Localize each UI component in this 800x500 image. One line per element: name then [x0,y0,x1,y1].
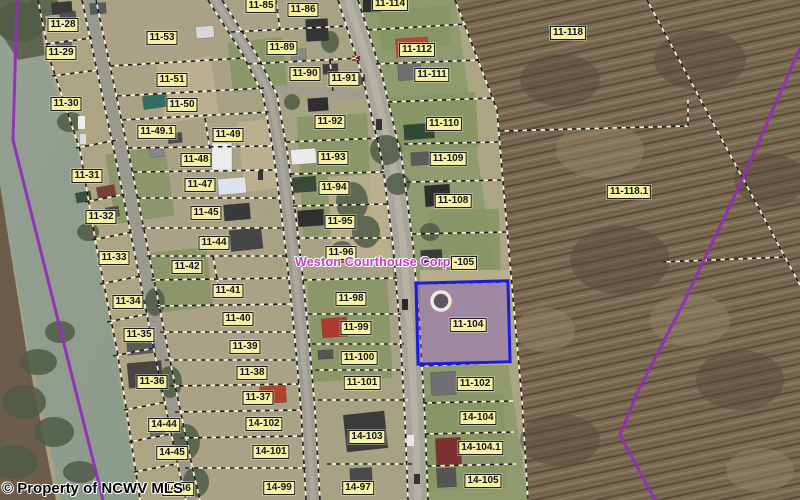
parcel-label-11-90[interactable]: 11-90 [289,67,320,81]
parcel-label-11-108[interactable]: 11-108 [435,194,472,208]
parcel-label-14-105[interactable]: 14-105 [464,474,501,488]
parcel-label-14-44[interactable]: 14-44 [148,418,180,432]
parcel-label-11-42[interactable]: 11-42 [171,260,202,274]
parcel-label-11-45[interactable]: 11-45 [190,206,221,220]
parcel-label-11-100[interactable]: 11-100 [341,351,378,365]
parcel-label-11-41[interactable]: 11-41 [212,284,243,298]
parcel-label-11-111[interactable]: 11-111 [414,68,449,82]
parcel-label-11-49[interactable]: 11-49 [212,128,243,142]
road-cross-street [266,89,372,95]
parcel-label-11-99[interactable]: 11-99 [340,321,371,335]
parcel-label-11-102[interactable]: 11-102 [457,377,494,391]
parcel-label-11-110[interactable]: 11-110 [426,117,462,131]
parcel-label-11-31[interactable]: 11-31 [71,169,102,183]
parcel-label-14-102[interactable]: 14-102 [245,417,282,431]
parcel-label-11-39[interactable]: 11-39 [229,340,260,354]
parcel-label-11-95[interactable]: 11-95 [324,215,355,229]
parcel-label-11-91[interactable]: 11-91 [328,72,359,86]
tank-feature-icon [432,292,450,310]
parcel-label-11-30[interactable]: 11-30 [50,97,81,111]
parcel-label-11-89[interactable]: 11-89 [266,41,297,55]
parcel-label-11-104[interactable]: 11-104 [450,318,487,332]
parcel-label-11-112[interactable]: 11-112 [399,43,435,57]
parcel-label-11-40[interactable]: 11-40 [222,312,253,326]
parcel-label-11-28[interactable]: 11-28 [47,18,78,32]
owner-name-overlay: Weston Courthouse Corp [295,255,451,270]
parcel-label-11-38[interactable]: 11-38 [236,366,267,380]
parcel-label-14-97[interactable]: 14-97 [342,481,374,495]
parcel-label-14-104.1[interactable]: 14-104.1 [458,441,503,455]
parcel-label-11-34[interactable]: 11-34 [112,295,143,309]
parcel-label-14-104[interactable]: 14-104 [459,411,496,425]
parcel-label-11-109[interactable]: 11-109 [430,152,467,166]
parcel-label-105[interactable]: -105 [451,256,477,270]
parcel-label-11-44[interactable]: 11-44 [198,236,229,250]
parcel-label-11-29[interactable]: 11-29 [45,46,76,60]
parcel-label-11-101[interactable]: 11-101 [344,376,381,390]
parcel-label-11-47[interactable]: 11-47 [184,178,215,192]
parcel-label-11-35[interactable]: 11-35 [123,328,154,342]
parcel-label-14-45[interactable]: 14-45 [156,446,188,460]
parcel-label-11-93[interactable]: 11-93 [317,151,348,165]
parcel-label-11-50[interactable]: 11-50 [166,98,197,112]
parcel-label-11-92[interactable]: 11-92 [314,115,345,129]
mls-attribution: © Property of NCWV MLS [2,480,183,498]
parcel-label-11-86[interactable]: 11-86 [287,3,318,17]
parcel-label-11-32[interactable]: 11-32 [85,210,116,224]
parcel-map-canvas[interactable]: 11-2811-2911-3011-3111-3211-3311-3411-35… [0,0,800,500]
parcel-label-11-36[interactable]: 11-36 [136,375,167,389]
parcel-label-11-118[interactable]: 11-118 [550,26,586,40]
parcel-label-11-33[interactable]: 11-33 [98,251,129,265]
parcel-label-14-103[interactable]: 14-103 [348,430,385,444]
parcel-label-14-101[interactable]: 14-101 [252,445,289,459]
parcel-label-11-114[interactable]: 11-114 [372,0,408,11]
parcel-label-11-49.1[interactable]: 11-49.1 [137,125,176,139]
parcel-label-11-118.1[interactable]: 11-118.1 [607,185,651,199]
parcel-label-11-85[interactable]: 11-85 [245,0,276,13]
parcel-label-11-37[interactable]: 11-37 [242,391,273,405]
parcel-label-14-99[interactable]: 14-99 [263,481,295,495]
parcel-label-11-48[interactable]: 11-48 [180,153,211,167]
parcel-label-11-53[interactable]: 11-53 [146,31,177,45]
parcel-label-11-94[interactable]: 11-94 [318,181,349,195]
small-feature-dot [459,305,466,312]
aerial-basemap [0,0,800,500]
parcel-label-11-51[interactable]: 11-51 [156,73,187,87]
parcel-label-11-98[interactable]: 11-98 [335,292,366,306]
